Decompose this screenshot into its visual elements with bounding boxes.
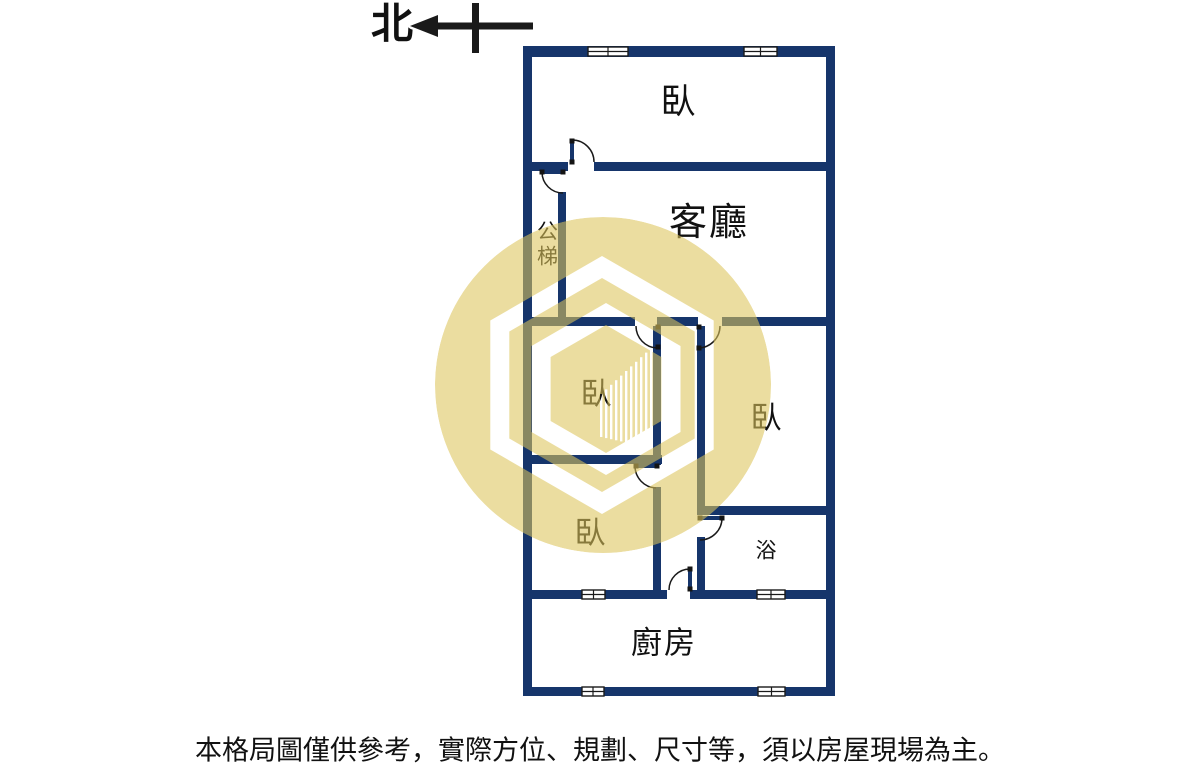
room-label-bedroom-middle: 臥 xyxy=(581,379,612,410)
room-label-bedroom-lower: 臥 xyxy=(575,518,606,549)
room-label-bedroom-top: 臥 xyxy=(660,85,695,120)
disclaimer-text: 本格局圖僅供參考，實際方位、規劃、尺寸等，須以房屋現場為主。 xyxy=(195,729,1005,768)
room-labels: 北 臥 客廳 公梯 臥 臥 臥 浴 廚房 xyxy=(0,0,1200,768)
room-label-public-stairs: 公梯 xyxy=(536,220,557,270)
room-label-bathroom: 浴 xyxy=(756,541,777,562)
room-label-living-room: 客廳 xyxy=(669,204,749,242)
room-label-kitchen: 廚房 xyxy=(631,628,697,659)
floor-plan-page: 北 臥 客廳 公梯 臥 臥 臥 浴 廚房 xyxy=(0,0,1200,768)
room-label-bedroom-right: 臥 xyxy=(751,403,782,434)
north-label: 北 xyxy=(371,4,413,46)
